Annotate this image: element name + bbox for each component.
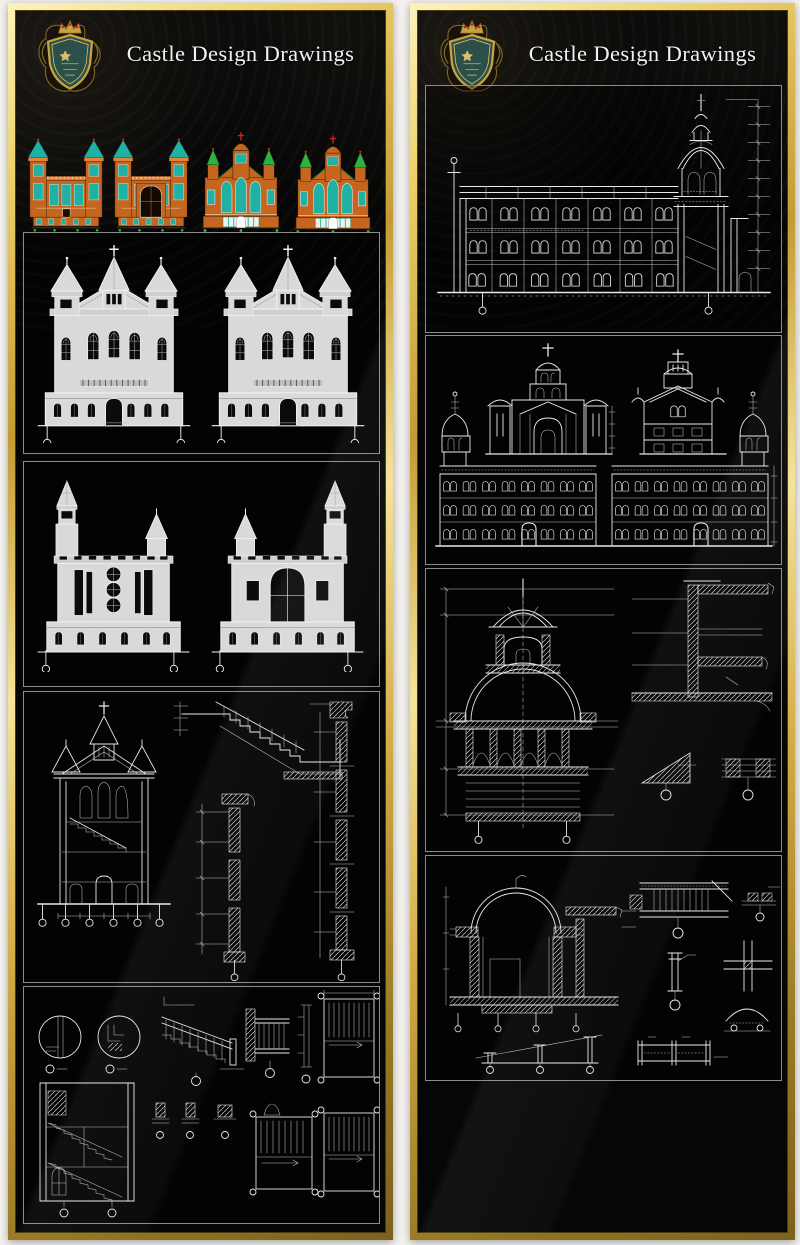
sheet-building-section-details: [23, 691, 380, 983]
panel-title: Castle Design Drawings: [503, 41, 782, 67]
long-building-section-drawing: [426, 86, 781, 332]
panel-left-header: Castle Design Drawings: [15, 10, 386, 110]
castle-illustration-2: [110, 136, 192, 236]
sheet-castle-elevations: [23, 461, 380, 687]
roof-dome-details-drawing: [426, 856, 781, 1080]
panel-left-inner: Castle Design Drawings: [15, 10, 386, 1233]
sheet-stair-details: [23, 986, 380, 1224]
colored-castle-row: [25, 118, 377, 236]
sheet-long-section: [425, 85, 782, 333]
panel-right-inner: Castle Design Drawings: [417, 10, 788, 1233]
sheet-dome-section-details: [425, 568, 782, 852]
sheet-roof-section-details: [425, 855, 782, 1081]
castle-illustration-3: [196, 126, 286, 236]
panel-title: Castle Design Drawings: [101, 41, 380, 67]
stair-details-drawing: [24, 987, 379, 1223]
building-section-drawing: [24, 692, 379, 982]
castle-illustration-1: [25, 136, 107, 236]
cathedral-elevations-drawing: [426, 336, 781, 564]
castle-elevations-drawing: [24, 462, 379, 686]
castle-illustration-4: [289, 130, 377, 236]
sheet-church-elevations: [23, 232, 380, 454]
sheet-cathedral-elevations: [425, 335, 782, 565]
dome-section-drawing: [426, 569, 781, 851]
church-elevations-drawing: [24, 233, 379, 453]
page-root: { "page": { "background": "#f3f2ee" }, "…: [0, 0, 800, 1245]
drawing-panel-right: Castle Design Drawings: [410, 3, 795, 1240]
drawing-panel-left: Castle Design Drawings: [8, 3, 393, 1240]
